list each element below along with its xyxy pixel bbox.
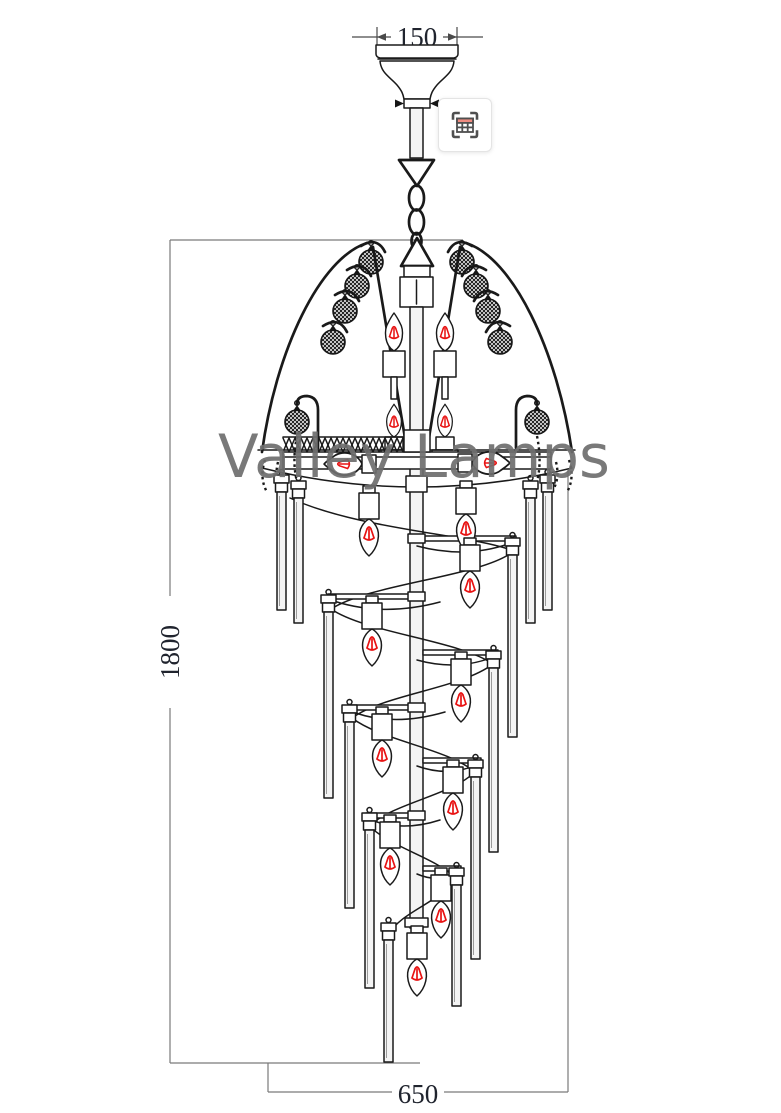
glass-tube: [321, 590, 336, 799]
body-width-value: 650: [398, 1079, 439, 1109]
chandelier-line-drawing: 150 1800 650: [0, 0, 781, 1113]
hook-upper: [399, 160, 434, 186]
glass-tube: [291, 476, 306, 624]
table-header-accent: [457, 119, 473, 123]
image-search-button[interactable]: [438, 98, 492, 152]
glass-tube: [505, 533, 520, 738]
hanging-chain: [399, 160, 434, 307]
glass-tube: [523, 476, 538, 624]
candle-bulb: [451, 652, 471, 722]
hanging-rod-top: [410, 108, 423, 158]
candle-bulb: [431, 868, 451, 938]
glass-tube: [342, 700, 357, 909]
glass-tube: [362, 808, 377, 989]
glass-tube: [449, 863, 464, 1007]
hook-lower: [401, 238, 433, 266]
glass-tube: [486, 646, 501, 853]
candle-bulb: [380, 815, 400, 885]
product-dimension-drawing-page: 150 1800 650: [0, 0, 781, 1113]
candle-bulb: [443, 760, 463, 830]
candle-bulb: [362, 596, 382, 666]
overall-height-value: 1800: [155, 625, 185, 679]
neck-arrow-left: [395, 100, 404, 108]
central-rod: [410, 307, 423, 928]
image-search-table-icon: [449, 109, 481, 141]
glass-tube: [381, 918, 396, 1063]
glass-tube: [468, 755, 483, 960]
candle-bulb: [372, 707, 392, 777]
candle-bulb: [407, 926, 427, 996]
candle-bulb: [460, 538, 480, 608]
watermark-text: Valley Lamps: [218, 422, 610, 492]
